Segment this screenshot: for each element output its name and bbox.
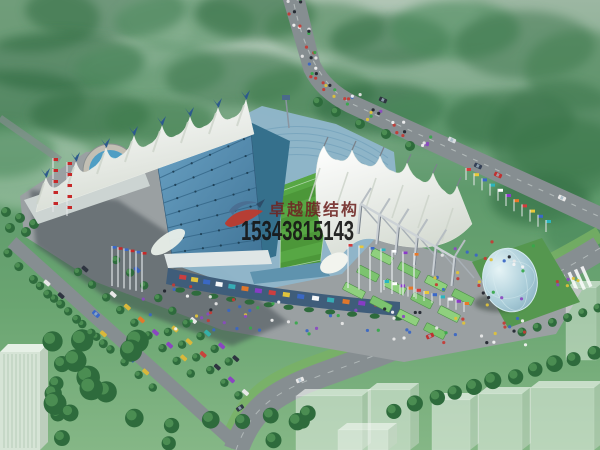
person-dot xyxy=(444,331,447,334)
person-dot xyxy=(433,276,436,279)
tree-highlight xyxy=(103,294,108,299)
scene-svg xyxy=(0,0,600,450)
tree-highlight xyxy=(197,333,202,338)
person-dot xyxy=(508,255,511,258)
person-dot xyxy=(235,327,238,330)
flag xyxy=(499,189,504,192)
person-dot xyxy=(287,320,290,323)
person-dot xyxy=(309,75,312,78)
person-dot xyxy=(341,322,344,325)
tree-highlight xyxy=(183,320,188,325)
tree-highlight xyxy=(149,384,154,389)
person-dot xyxy=(369,111,372,114)
person-dot xyxy=(462,321,465,324)
person-dot xyxy=(503,322,506,325)
person-dot xyxy=(556,283,559,286)
person-dot xyxy=(351,95,354,98)
flag xyxy=(54,191,59,194)
roof-anchor xyxy=(176,197,178,199)
shrub xyxy=(191,291,201,296)
person-dot xyxy=(307,30,310,33)
flag xyxy=(465,302,470,305)
tree-highlight xyxy=(332,108,338,114)
shrub xyxy=(347,311,357,316)
person-dot xyxy=(521,265,524,268)
person-dot xyxy=(305,46,308,49)
tree-highlight xyxy=(163,437,171,445)
person-dot xyxy=(301,55,304,58)
ghost-building-roof xyxy=(478,387,531,394)
roof-anchor xyxy=(227,145,229,147)
person-dot xyxy=(566,284,569,287)
flag xyxy=(54,180,59,183)
roof-anchor xyxy=(194,190,196,192)
person-dot xyxy=(207,319,210,322)
person-dot xyxy=(466,251,469,254)
person-dot xyxy=(426,142,429,145)
flag xyxy=(523,204,528,207)
tree-highlight xyxy=(485,373,494,382)
person-dot xyxy=(454,333,457,336)
flag xyxy=(371,247,375,250)
flag xyxy=(433,293,438,296)
roof-anchor xyxy=(213,184,215,186)
flag xyxy=(457,300,462,303)
person-dot xyxy=(307,332,310,335)
person-dot xyxy=(232,298,235,301)
ghost-building xyxy=(478,387,531,450)
person-dot xyxy=(223,321,226,324)
flag xyxy=(393,250,397,253)
roof-anchor xyxy=(172,171,174,173)
roof-anchor xyxy=(191,162,193,164)
flag xyxy=(113,246,117,249)
person-dot xyxy=(315,72,318,75)
person-dot xyxy=(366,118,369,121)
person-dot xyxy=(324,84,327,87)
person-dot xyxy=(484,257,487,260)
tree-highlight xyxy=(406,142,412,148)
tree-highlight xyxy=(235,392,240,397)
person-dot xyxy=(172,283,175,286)
person-dot xyxy=(173,288,176,291)
tree-highlight xyxy=(141,282,146,287)
person-dot xyxy=(337,314,340,317)
person-dot xyxy=(503,259,506,262)
person-dot xyxy=(190,319,193,322)
person-dot xyxy=(227,309,230,312)
ghost-building xyxy=(338,423,397,450)
ghost-building-side xyxy=(410,383,419,450)
person-dot xyxy=(189,285,192,288)
roof-anchor xyxy=(174,184,176,186)
person-dot xyxy=(520,297,523,300)
person-dot xyxy=(454,247,457,250)
roof-anchor xyxy=(196,205,198,207)
stadium-aerial-rendering: 卓越膜结构 15343815143 xyxy=(0,0,600,450)
person-dot xyxy=(308,62,311,65)
roof-anchor xyxy=(248,189,250,191)
tree-highlight xyxy=(594,304,599,309)
tree-highlight xyxy=(81,379,94,392)
roof-anchor xyxy=(198,219,200,221)
tree-highlight xyxy=(221,379,226,384)
person-dot xyxy=(314,77,317,80)
person-dot xyxy=(377,112,380,115)
flag xyxy=(475,173,480,176)
flag xyxy=(54,158,59,161)
person-dot xyxy=(524,343,527,346)
flag xyxy=(467,168,472,171)
roof-anchor xyxy=(200,233,202,235)
person-dot xyxy=(513,259,516,262)
flag xyxy=(415,253,419,256)
person-dot xyxy=(305,329,308,332)
tree-highlight xyxy=(107,346,112,351)
tree-highlight xyxy=(57,300,62,305)
tree-highlight xyxy=(15,263,20,268)
roof-anchor xyxy=(218,229,220,231)
person-dot xyxy=(215,302,218,305)
pale-tower xyxy=(0,344,48,450)
person-dot xyxy=(163,289,166,292)
person-dot xyxy=(508,325,511,328)
tree-highlight xyxy=(314,98,320,104)
tree-highlight xyxy=(2,208,8,214)
ghost-building-front xyxy=(432,400,470,450)
tree-highlight xyxy=(207,367,212,372)
person-dot xyxy=(174,327,177,330)
person-dot xyxy=(372,108,375,111)
tree-highlight xyxy=(126,410,136,420)
person-dot xyxy=(244,315,247,318)
tree-highlight xyxy=(301,407,310,416)
person-dot xyxy=(209,308,212,311)
person-dot xyxy=(461,318,464,321)
person-dot xyxy=(299,0,302,3)
person-dot xyxy=(475,254,478,257)
person-dot xyxy=(435,283,438,286)
tree-highlight xyxy=(236,415,244,423)
flag xyxy=(393,282,398,285)
tree-highlight xyxy=(547,357,556,366)
person-dot xyxy=(392,337,395,340)
ghost-building-roof xyxy=(530,381,600,388)
tree-highlight xyxy=(579,309,584,314)
tree-highlight xyxy=(122,341,134,353)
person-dot xyxy=(195,314,198,317)
tree-highlight xyxy=(66,351,78,363)
person-dot xyxy=(532,244,535,247)
person-dot xyxy=(256,306,259,309)
flag xyxy=(507,194,512,197)
person-dot xyxy=(556,280,559,283)
tree-highlight xyxy=(589,347,597,355)
flag xyxy=(68,173,73,176)
tree-highlight xyxy=(87,329,92,334)
tree-highlight xyxy=(408,397,417,406)
person-dot xyxy=(328,84,331,87)
flag xyxy=(54,202,59,205)
tree-highlight xyxy=(36,282,41,287)
person-dot xyxy=(500,296,503,299)
flag xyxy=(349,244,353,247)
person-dot xyxy=(490,258,493,261)
ghost-building xyxy=(530,381,600,450)
roof-anchor xyxy=(245,155,247,157)
roof-anchor xyxy=(211,169,213,171)
roof-anchor xyxy=(251,222,253,224)
person-dot xyxy=(332,95,335,98)
ghost-building-side xyxy=(594,381,600,450)
tree-highlight xyxy=(193,354,198,359)
tree-highlight xyxy=(187,370,192,375)
person-dot xyxy=(418,311,421,314)
tree-highlight xyxy=(50,377,58,385)
person-dot xyxy=(295,321,298,324)
tree-highlight xyxy=(165,419,173,427)
person-dot xyxy=(383,307,386,310)
tree-highlight xyxy=(387,405,395,413)
tree-highlight xyxy=(382,130,388,136)
person-dot xyxy=(486,303,489,306)
person-dot xyxy=(322,88,325,91)
flag xyxy=(547,220,552,223)
person-dot xyxy=(209,295,212,298)
tree-highlight xyxy=(112,256,117,261)
roof-anchor xyxy=(249,206,251,208)
person-dot xyxy=(377,329,380,332)
person-dot xyxy=(456,271,459,274)
tree-highlight xyxy=(267,433,276,442)
tree-highlight xyxy=(431,391,439,399)
flag xyxy=(68,162,73,165)
person-dot xyxy=(503,325,506,328)
shrub xyxy=(370,314,380,319)
person-dot xyxy=(298,24,301,27)
roof-anchor xyxy=(253,239,255,241)
ghost-building-front xyxy=(478,394,522,450)
tree-highlight xyxy=(164,328,169,333)
person-dot xyxy=(313,51,316,54)
tree-highlight xyxy=(44,290,49,295)
person-dot xyxy=(442,288,445,291)
floodlight-head xyxy=(282,95,290,100)
roof-anchor xyxy=(202,247,204,249)
tree-highlight xyxy=(89,281,94,286)
person-dot xyxy=(391,311,394,314)
person-dot xyxy=(142,297,145,300)
person-dot xyxy=(494,332,497,335)
person-dot xyxy=(249,326,252,329)
person-dot xyxy=(485,341,488,344)
person-dot xyxy=(248,309,251,312)
person-dot xyxy=(347,97,350,100)
tree-highlight xyxy=(173,357,178,362)
person-dot xyxy=(293,10,296,13)
person-dot xyxy=(270,319,273,322)
tree-highlight xyxy=(22,228,28,234)
person-dot xyxy=(310,56,313,59)
roof-anchor xyxy=(220,244,222,246)
person-dot xyxy=(490,240,493,243)
person-dot xyxy=(477,284,480,287)
person-dot xyxy=(482,291,485,294)
person-dot xyxy=(523,331,526,334)
roof-anchor xyxy=(234,210,236,212)
person-dot xyxy=(209,311,212,314)
person-dot xyxy=(359,93,362,96)
person-dot xyxy=(521,319,524,322)
person-dot xyxy=(442,341,445,344)
person-dot xyxy=(391,121,394,124)
tree-highlight xyxy=(449,386,457,394)
person-dot xyxy=(271,302,274,305)
person-dot xyxy=(566,278,569,281)
person-dot xyxy=(572,277,575,280)
roof-anchor xyxy=(243,138,245,140)
flag xyxy=(425,291,430,294)
person-dot xyxy=(492,291,495,294)
person-dot xyxy=(402,315,405,318)
flag xyxy=(515,199,520,202)
flag xyxy=(68,195,73,198)
flag xyxy=(137,251,141,254)
person-dot xyxy=(441,254,444,257)
tree-highlight xyxy=(159,345,164,350)
tree-highlight xyxy=(518,328,523,333)
tree-highlight xyxy=(264,409,273,418)
roof-anchor xyxy=(232,193,234,195)
tree-highlight xyxy=(549,319,554,324)
flag xyxy=(417,289,422,292)
person-dot xyxy=(287,12,290,15)
person-dot xyxy=(401,134,404,137)
ghost-building-front xyxy=(530,388,594,450)
person-dot xyxy=(186,294,189,297)
person-dot xyxy=(354,309,357,312)
flag xyxy=(54,169,59,172)
person-dot xyxy=(343,97,346,100)
tree-highlight xyxy=(63,406,72,415)
tree-highlight xyxy=(65,308,70,313)
person-dot xyxy=(421,144,424,147)
tree-highlight xyxy=(30,220,36,226)
person-dot xyxy=(492,341,495,344)
person-dot xyxy=(435,326,438,329)
person-dot xyxy=(329,314,332,317)
tree-highlight xyxy=(55,431,64,440)
tree-highlight xyxy=(74,268,79,273)
person-dot xyxy=(292,24,295,27)
person-dot xyxy=(370,115,373,118)
person-dot xyxy=(346,102,349,105)
tree-highlight xyxy=(533,323,538,328)
person-dot xyxy=(487,296,490,299)
roof-anchor xyxy=(209,154,211,156)
shrub xyxy=(245,299,255,304)
flag xyxy=(404,252,408,255)
roof-anchor xyxy=(178,210,180,212)
tree-highlight xyxy=(467,380,476,389)
flag xyxy=(360,246,364,249)
person-dot xyxy=(149,313,152,316)
person-dot xyxy=(333,88,336,91)
person-dot xyxy=(366,329,369,332)
shrub xyxy=(325,309,335,314)
person-dot xyxy=(402,121,405,124)
shrub xyxy=(283,305,293,310)
tree-highlight xyxy=(568,353,576,361)
person-dot xyxy=(277,300,280,303)
person-dot xyxy=(408,331,411,334)
ghost-building-roof xyxy=(338,423,397,430)
tree-highlight xyxy=(179,341,184,346)
person-dot xyxy=(238,305,241,308)
flag xyxy=(382,249,386,252)
tree-highlight xyxy=(131,319,136,324)
person-dot xyxy=(403,130,406,133)
person-dot xyxy=(512,329,515,332)
person-dot xyxy=(478,280,481,283)
person-dot xyxy=(392,317,395,320)
person-dot xyxy=(516,317,519,320)
roof-anchor xyxy=(236,226,238,228)
person-dot xyxy=(322,81,325,84)
tree-highlight xyxy=(203,412,213,422)
roof-anchor xyxy=(229,161,231,163)
flag xyxy=(483,178,488,181)
roof-anchor xyxy=(184,250,186,252)
pale-tower-roof xyxy=(0,344,48,352)
roof-anchor xyxy=(246,172,248,174)
person-dot xyxy=(429,135,432,138)
shrub xyxy=(175,287,185,292)
roof-anchor xyxy=(231,177,233,179)
flag xyxy=(531,210,536,213)
flag xyxy=(385,280,390,283)
person-dot xyxy=(315,327,318,330)
person-dot xyxy=(314,56,317,59)
tree-highlight xyxy=(564,314,569,319)
roof-anchor xyxy=(180,223,182,225)
person-dot xyxy=(395,131,398,134)
ghost-building-roof xyxy=(296,389,371,396)
flag xyxy=(449,298,454,301)
roof-anchor xyxy=(238,242,240,244)
tree-highlight xyxy=(4,249,9,254)
person-dot xyxy=(414,311,417,314)
person-dot xyxy=(258,329,261,332)
roof-anchor xyxy=(216,214,218,216)
flag xyxy=(539,215,544,218)
tree-highlight xyxy=(529,363,537,371)
tree-highlight xyxy=(6,224,12,230)
tree-highlight xyxy=(30,276,35,281)
person-dot xyxy=(521,269,524,272)
flag xyxy=(131,250,135,253)
tree-highlight xyxy=(99,340,104,345)
person-dot xyxy=(480,334,483,337)
person-dot xyxy=(576,279,579,282)
flag xyxy=(125,248,129,251)
person-dot xyxy=(311,72,314,75)
person-dot xyxy=(454,317,457,320)
flag xyxy=(68,206,73,209)
person-dot xyxy=(456,277,459,280)
roof-anchor xyxy=(192,176,194,178)
tree-highlight xyxy=(509,370,517,378)
